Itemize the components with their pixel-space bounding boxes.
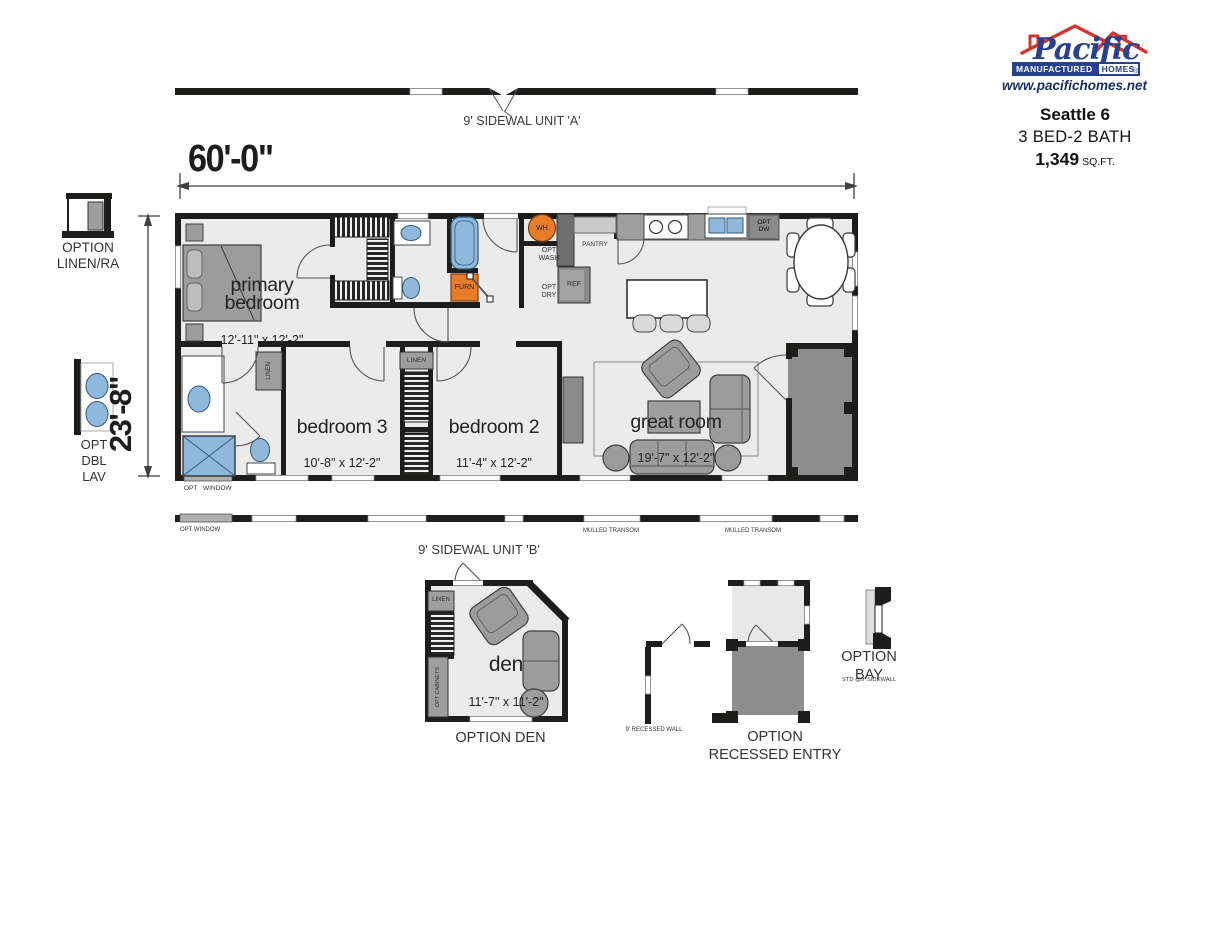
great-room-label: great room 19'-7" x 12'-2": [612, 395, 740, 483]
island-icon: [627, 280, 707, 318]
unit-b-label: 9' SIDEWAL UNIT 'B': [390, 543, 568, 558]
sink-icon: [188, 386, 210, 412]
linen-hall-label: LINEN: [400, 357, 433, 364]
model-sqft: 1,349SQ.FT.: [1000, 149, 1150, 170]
opt-dbl-lav-label: OPT DBL LAV: [72, 437, 116, 485]
logo-bar-left: MANUFACTURED: [1012, 62, 1097, 76]
logo-website: www.pacifichomes.net: [1002, 78, 1142, 93]
linen-ra-icon: [62, 193, 114, 238]
furnace-label: FURN: [451, 284, 478, 292]
pantry-label: PANTRY: [574, 241, 616, 248]
ref-label: REF: [560, 281, 588, 289]
primary-bedroom-label: primary bedroom 12'-11" x 12'-2": [192, 258, 332, 365]
opt-dw-label: OPT DW: [750, 219, 778, 234]
model-spec: 3 BED-2 BATH: [1000, 128, 1150, 147]
den-cabinets-label: OPT CABINETS: [428, 659, 448, 715]
mulled-transom-1-label: MULLED TRANSOM: [580, 528, 642, 535]
recessed-entry-caption: OPTION RECESSED ENTRY: [700, 729, 850, 764]
sidewall-unit-b: [175, 514, 858, 522]
logo-registered: ®: [1133, 68, 1138, 75]
floorplan-sheet: 9' SIDEWAL UNIT 'A' 60'-0" 23'-8" OPTION…: [0, 0, 1214, 944]
linen-bath-label: LINEN: [256, 353, 282, 389]
option-bay-shape: [866, 587, 891, 649]
option-bay-note: STD @9' SIDEWALL: [834, 677, 904, 683]
model-name: Seattle 6: [1010, 105, 1140, 125]
unit-a-label: 9' SIDEWAL UNIT 'A': [438, 114, 606, 128]
water-heater-label: WH: [531, 225, 553, 233]
toilet-icon: [403, 278, 420, 299]
height-dimension: [138, 213, 160, 479]
toilet-icon: [251, 439, 270, 462]
tv-icon: [563, 377, 583, 443]
opt-window-b-label: OPT WINDOW: [180, 527, 234, 534]
sink-icon: [401, 226, 421, 241]
bedroom-3-label: bedroom 3 10'-8" x 12'-2": [286, 400, 398, 488]
option-linen-ra-label: OPTION LINEN/RA: [46, 240, 130, 273]
stool-icons: [633, 315, 710, 332]
den-linen-label: LINEN: [428, 597, 454, 604]
sidewall-unit-a: [175, 87, 858, 116]
opt-window-bath-label: OPT WINDOW: [184, 485, 240, 492]
width-dimension-label: 60'-0": [188, 138, 287, 181]
opt-wash-label: OPT WASH: [533, 247, 565, 263]
logo-bar: MANUFACTURED HOMES: [1012, 62, 1140, 76]
den-label: den 11'-7" x 11'-2": [452, 637, 560, 727]
mulled-transom-2-label: MULLED TRANSOM: [722, 528, 784, 535]
bedroom-2-label: bedroom 2 11'-4" x 12'-2": [428, 400, 560, 488]
option-den-caption: OPTION DEN: [428, 730, 573, 748]
recessed-wall-caption: 9' RECESSED WALL: [615, 727, 693, 734]
recessed-wall-plan: [645, 641, 710, 724]
